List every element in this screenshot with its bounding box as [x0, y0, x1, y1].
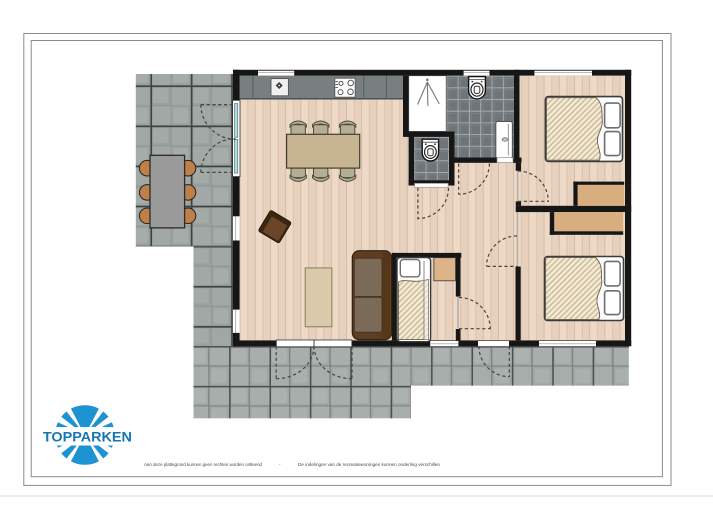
svg-text:De indelingen van de recreatie: De indelingen van de recreatiewoningen k…: [298, 462, 441, 467]
svg-text:Aan deze plattegrond kunnen ge: Aan deze plattegrond kunnen geen rechten…: [144, 462, 262, 467]
svg-text:TOPPARKEN: TOPPARKEN: [43, 430, 132, 446]
